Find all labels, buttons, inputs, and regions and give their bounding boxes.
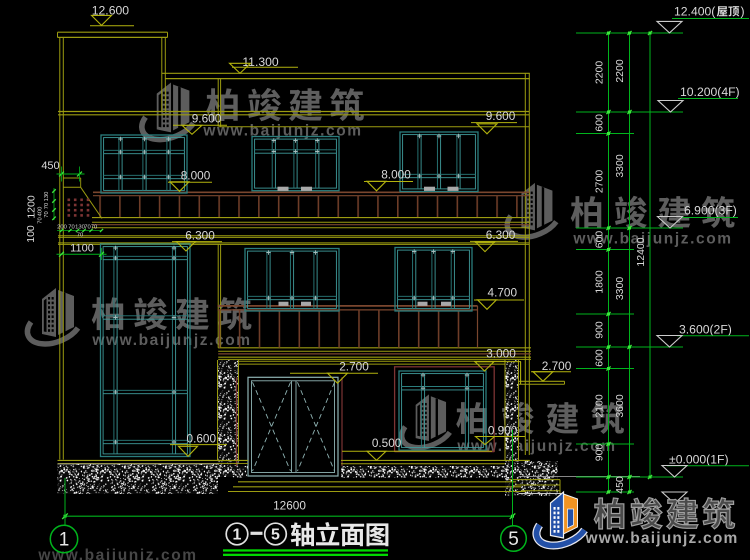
svg-text:2100: 2100 xyxy=(594,394,606,418)
svg-text:400: 400 xyxy=(38,207,44,217)
svg-text:2200: 2200 xyxy=(594,61,606,85)
svg-text:2200: 2200 xyxy=(614,59,626,83)
svg-text:0.600: 0.600 xyxy=(187,432,217,446)
svg-text:12400: 12400 xyxy=(635,237,647,266)
svg-text:5: 5 xyxy=(271,527,280,544)
svg-text:600: 600 xyxy=(594,349,606,367)
svg-text:130: 130 xyxy=(44,192,50,202)
svg-text:±0.000(1F): ±0.000(1F) xyxy=(669,453,729,467)
svg-text:4.700: 4.700 xyxy=(488,286,518,300)
svg-text:70: 70 xyxy=(44,211,50,217)
svg-text:5: 5 xyxy=(508,529,519,550)
svg-text:8.000: 8.000 xyxy=(181,169,211,183)
svg-text:2.700: 2.700 xyxy=(542,359,572,373)
svg-text:100: 100 xyxy=(25,225,37,243)
svg-text:1100: 1100 xyxy=(70,243,94,255)
svg-text:10.200(4F): 10.200(4F) xyxy=(680,85,740,99)
svg-text:450: 450 xyxy=(614,476,626,494)
svg-text:1: 1 xyxy=(59,530,70,551)
svg-text:): ) xyxy=(741,5,745,19)
svg-text:70: 70 xyxy=(77,233,83,239)
svg-text:70: 70 xyxy=(44,203,50,209)
svg-text:70: 70 xyxy=(38,217,44,223)
svg-text:450: 450 xyxy=(41,160,59,172)
svg-text:12.400(: 12.400( xyxy=(674,5,715,19)
svg-text:3300: 3300 xyxy=(614,277,626,301)
svg-text:900: 900 xyxy=(594,444,606,462)
svg-text:0.500: 0.500 xyxy=(372,436,402,450)
svg-text:900: 900 xyxy=(594,321,606,339)
svg-text:0.900: 0.900 xyxy=(488,423,518,437)
svg-text:3.600(2F): 3.600(2F) xyxy=(679,323,732,337)
svg-text:3.000: 3.000 xyxy=(486,347,516,361)
svg-text:600: 600 xyxy=(594,114,606,132)
svg-text:6.900(3F): 6.900(3F) xyxy=(684,204,737,218)
svg-text:2700: 2700 xyxy=(594,170,606,194)
svg-text:1800: 1800 xyxy=(594,270,606,294)
svg-text:8.000: 8.000 xyxy=(381,168,411,182)
svg-text:9.600: 9.600 xyxy=(486,109,516,123)
svg-text:3300: 3300 xyxy=(614,154,626,178)
svg-text:www.baijunjz.com: www.baijunjz.com xyxy=(585,530,739,547)
svg-text:1200: 1200 xyxy=(26,195,38,219)
svg-text:12600: 12600 xyxy=(273,499,306,513)
svg-text:6.300: 6.300 xyxy=(486,228,516,242)
svg-text:3600: 3600 xyxy=(614,394,626,418)
svg-text:6.300: 6.300 xyxy=(185,229,215,243)
svg-text:600: 600 xyxy=(594,231,606,249)
svg-text:1: 1 xyxy=(233,527,242,544)
svg-text:9.600: 9.600 xyxy=(192,112,222,126)
svg-text:2.700: 2.700 xyxy=(339,360,369,374)
